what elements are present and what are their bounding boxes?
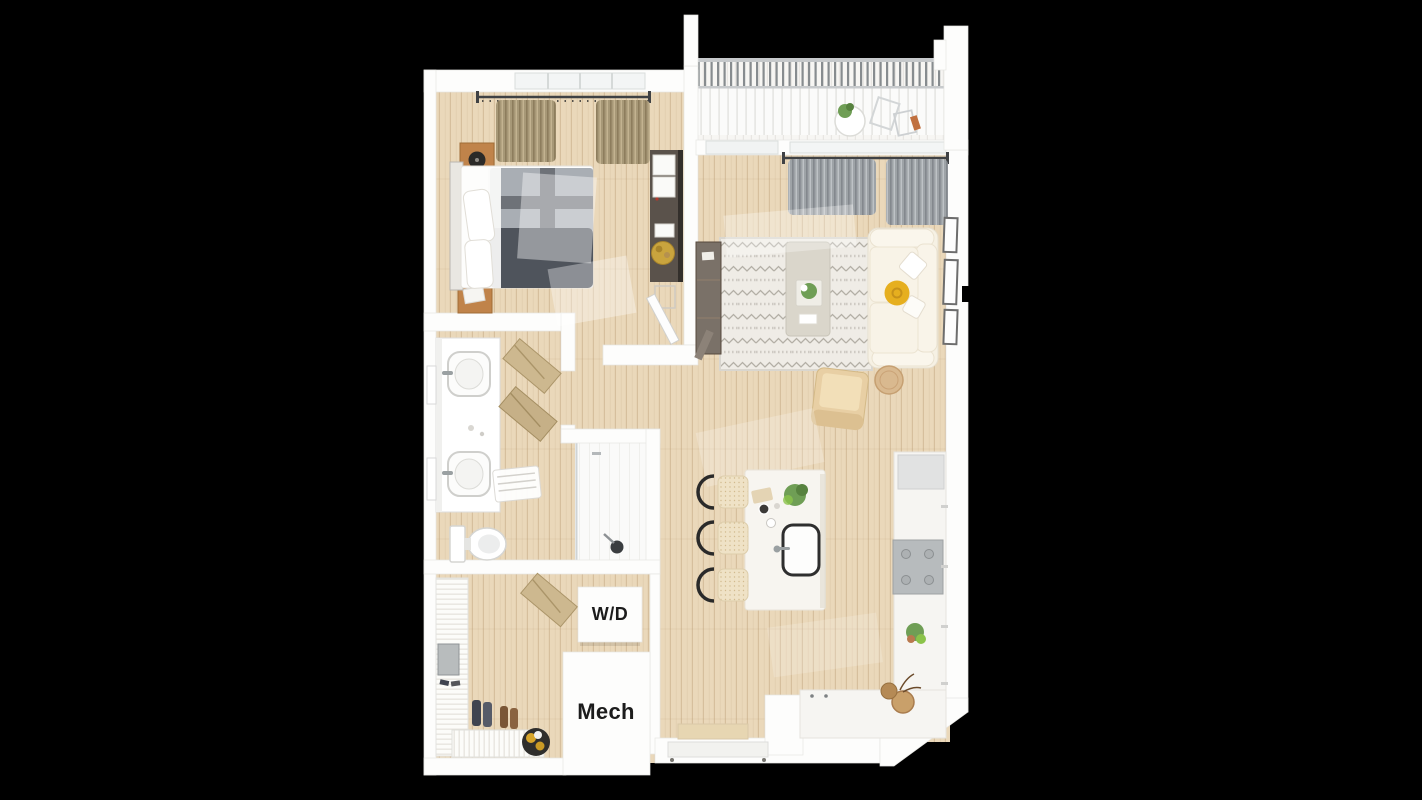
small-dish — [774, 503, 780, 509]
bedroom-curtain-left — [496, 100, 556, 162]
sink-basin-2 — [455, 459, 483, 489]
record-center — [475, 158, 479, 162]
living-rod-finial-left — [782, 152, 785, 164]
dresser-box-3 — [655, 224, 674, 237]
wall-entry-bottom — [424, 758, 566, 775]
espresso-cup — [759, 504, 769, 514]
bed-pillow-2 — [464, 239, 493, 289]
shelf-bracket-4 — [941, 682, 948, 685]
mech-label: Mech — [577, 699, 634, 724]
shower-interior — [575, 443, 646, 562]
vanity-backsplash — [436, 338, 442, 512]
wall-balcony-step-2 — [934, 40, 946, 70]
balcony-doorway — [706, 141, 778, 154]
wall-entry-right — [650, 574, 660, 754]
toilet — [450, 526, 506, 562]
sink-basin-1 — [455, 359, 483, 389]
white-cup — [767, 519, 776, 528]
nightstand-book — [463, 286, 485, 303]
kitchen-island — [745, 470, 826, 610]
boot-1b — [483, 702, 492, 727]
wall-towel-1 — [427, 366, 436, 404]
cabinet-handle-1 — [810, 694, 814, 698]
sofa — [868, 228, 938, 368]
basket-item-white — [534, 731, 542, 739]
gold-tray-item-1 — [656, 246, 663, 253]
wall-hall-cap — [603, 345, 698, 365]
gold-tray-item-2 — [664, 252, 670, 258]
yellow-pillow — [885, 281, 910, 306]
entry-door-leaf — [668, 742, 768, 757]
floor-plan: Mech W/D — [424, 15, 970, 775]
living-curtain-left — [788, 159, 876, 215]
basket-item-gold-2 — [536, 742, 545, 751]
island-faucet-arm — [777, 547, 790, 550]
vanity-jar-1 — [468, 425, 474, 431]
balcony — [688, 58, 944, 148]
door-mat-gray — [438, 644, 459, 675]
balcony-top-rail — [690, 58, 944, 62]
faucet-1 — [442, 371, 453, 375]
coffee-table — [786, 242, 830, 336]
boot-1a — [472, 700, 481, 726]
shelf-bracket-1 — [941, 505, 948, 508]
wall-bed-bath-divider — [424, 313, 563, 331]
dresser-shadow-edge — [678, 150, 683, 282]
side-table — [875, 366, 903, 394]
living-window — [790, 142, 946, 153]
wall-balcony-divider — [684, 15, 698, 66]
cabinet-handle-2 — [824, 694, 828, 698]
bedroom-curtain-right — [596, 100, 650, 164]
dresser-red-dot — [655, 197, 658, 200]
wall-right-notch — [962, 286, 970, 302]
balcony-plant-leaf — [846, 103, 854, 111]
shower-handle — [592, 452, 601, 455]
entry-floor-mat — [678, 724, 748, 739]
entry-closet-block — [765, 695, 803, 755]
wall-left-outer — [424, 70, 436, 775]
shelf-bracket-3 — [941, 625, 948, 628]
range-cooktop — [893, 540, 943, 594]
mechanical-room: Mech — [563, 652, 650, 775]
balcony-railing — [690, 62, 944, 88]
vanity-jar-2 — [480, 432, 484, 436]
door-hinge-2 — [762, 758, 766, 762]
boot-2a — [500, 706, 508, 728]
door-hinge-1 — [670, 758, 674, 762]
faucet-2 — [442, 471, 453, 475]
duvet-cross-h — [500, 196, 593, 209]
console-item — [702, 252, 715, 261]
duvet-dark — [490, 228, 593, 288]
washer-dryer-unit: W/D — [578, 587, 642, 646]
counter-run-bottom — [800, 690, 946, 738]
washer-dryer-label: W/D — [592, 604, 629, 624]
armchair — [811, 367, 870, 431]
upper-cabinet — [898, 455, 944, 489]
boot-2b — [510, 708, 518, 729]
wall-shower-top — [561, 429, 660, 443]
wall-towel-2 — [427, 458, 436, 500]
shelf-bracket-2 — [941, 565, 948, 568]
corner-basket-2 — [881, 683, 897, 699]
bath-mat — [492, 466, 541, 503]
balcony-rail-base — [690, 86, 944, 89]
wall-frames — [943, 218, 958, 344]
floor-plan-svg: Mech W/D — [0, 0, 1422, 800]
wall-shower-right — [646, 429, 660, 574]
living-curtain-right — [886, 159, 948, 225]
dresser-box-2 — [653, 177, 675, 197]
wall-balcony-right-step — [944, 26, 968, 150]
gold-tray — [652, 242, 675, 265]
curtain-rod-finial-left — [476, 91, 479, 103]
wall-bath-right-upper — [561, 313, 575, 371]
curtain-rod-finial-right — [648, 91, 651, 103]
dresser-box-1 — [653, 155, 675, 175]
